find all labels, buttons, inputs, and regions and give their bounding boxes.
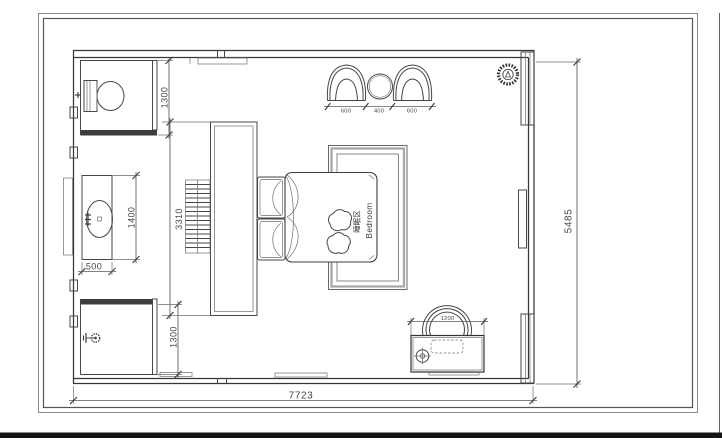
right-wall-recess (519, 190, 527, 248)
armchair-left-icon (327, 65, 365, 101)
dim-overall-width: 7723 (69, 386, 537, 404)
wardrobe-outer (211, 122, 258, 316)
vanity: 1400 500 (78, 172, 140, 275)
dim-text-wardrobe: 3310 (174, 208, 184, 230)
armchair-right-icon (393, 65, 431, 101)
dim-text-side-table: 400 (374, 109, 384, 115)
dim-vanity-depth: 500 (78, 262, 116, 276)
dim-seating: 600 400 600 (324, 103, 436, 115)
sheet-bottom-band (0, 433, 722, 438)
room-label-zh: 睡眠区 (353, 210, 362, 233)
dim-wc-depth: 1300 (158, 57, 173, 139)
bottom-threshold (275, 373, 327, 377)
plant-icon (499, 65, 518, 84)
desk-area: 1200 (407, 306, 488, 375)
right-window-bottom (521, 314, 534, 383)
sink-icon (85, 201, 113, 238)
dim-text-overall-width: 7723 (289, 391, 314, 402)
desk-base (429, 373, 479, 376)
dim-vanity-length: 1400 (112, 172, 140, 263)
dim-text-shower: 1300 (169, 326, 179, 348)
wc-wall-thick (81, 130, 158, 136)
wc-room: 1300 (75, 57, 173, 139)
shower-wall-thick (81, 299, 154, 305)
left-bay-window (64, 178, 73, 255)
pillow (258, 177, 286, 218)
shower-room: 1300 (81, 299, 193, 378)
dim-text-overall-depth: 5485 (564, 209, 575, 234)
wc-wall-right (153, 61, 158, 131)
shower-head-icon (84, 333, 100, 343)
room-label-en: Bedroom (365, 202, 374, 238)
dim-text-wc: 1300 (160, 87, 170, 109)
dim-text-vanity-depth: 500 (86, 262, 102, 272)
shower-wall-right (153, 299, 158, 375)
radiator (186, 180, 211, 253)
dim-text-armchair-left: 600 (341, 109, 351, 115)
bed: 睡眠区 Bedroom (258, 173, 378, 263)
dim-text-vanity-length: 1400 (127, 207, 137, 229)
dim-desk: 1200 (407, 316, 488, 335)
dim-overall-depth: 5485 (536, 58, 581, 388)
wardrobe (211, 122, 258, 316)
dim-text-desk: 1200 (441, 316, 455, 322)
right-window-top (521, 52, 534, 125)
seating-area (327, 65, 431, 101)
wardrobe-inner (215, 126, 254, 312)
side-table-inner (369, 76, 391, 98)
dim-wardrobe: 3310 (162, 118, 211, 319)
dim-text-armchair-right: 600 (407, 109, 417, 115)
floor-plan-canvas: 1300 1400 500 (0, 0, 722, 438)
curtain-box (198, 58, 247, 64)
floor-plan-drawing: 1300 1400 500 (0, 0, 722, 438)
toilet-icon (75, 81, 124, 112)
side-table-icon (368, 74, 393, 99)
pillow (258, 219, 286, 260)
